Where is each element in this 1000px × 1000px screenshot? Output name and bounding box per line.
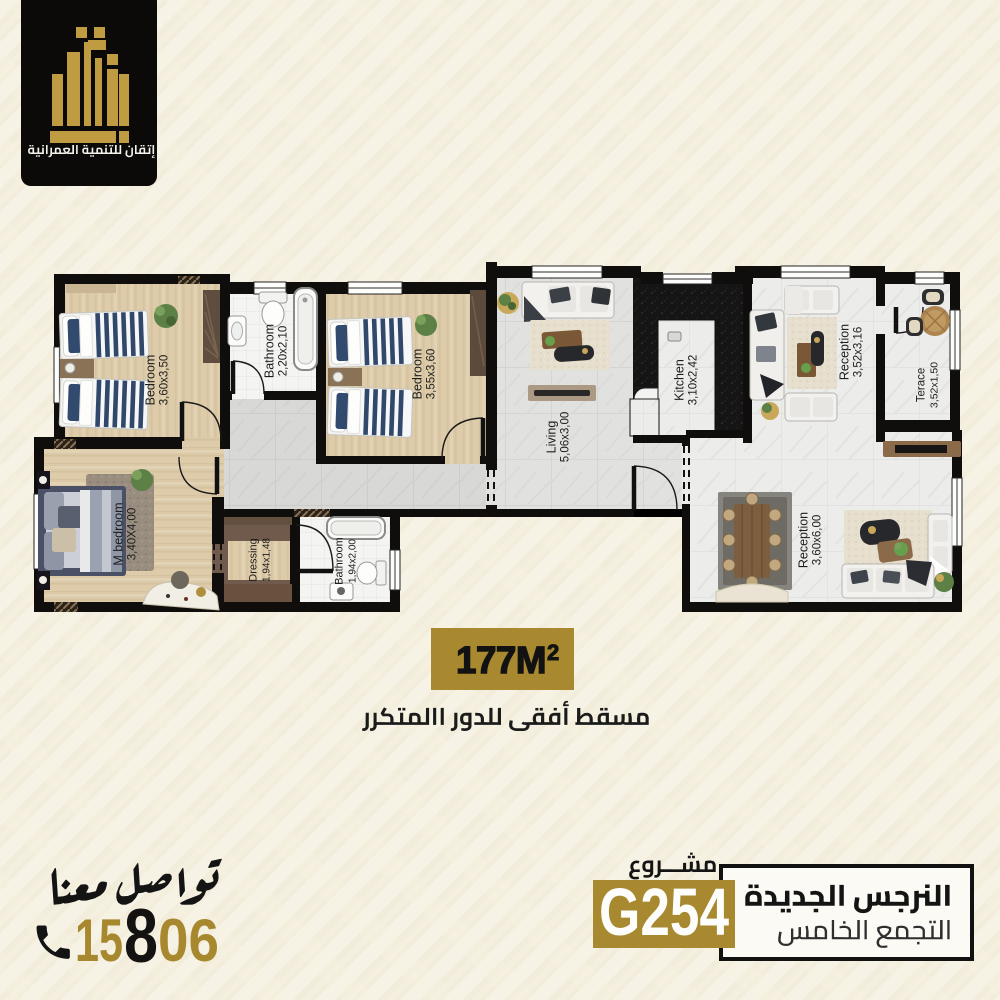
svg-text:Bathroom: Bathroom xyxy=(263,324,277,378)
svg-text:Bedroom: Bedroom xyxy=(411,349,425,400)
svg-text:Living: Living xyxy=(545,421,559,454)
svg-text:3,52x1,50: 3,52x1,50 xyxy=(929,362,941,408)
svg-text:3,52x3,16: 3,52x3,16 xyxy=(853,327,865,378)
svg-text:M bedroom: M bedroom xyxy=(112,502,126,565)
svg-text:06: 06 xyxy=(158,907,219,974)
svg-text:15: 15 xyxy=(75,907,123,974)
svg-text:3,60x3,50: 3,60x3,50 xyxy=(159,355,171,406)
svg-text:1,94x1,48: 1,94x1,48 xyxy=(262,538,273,582)
svg-text:Dressing: Dressing xyxy=(248,538,260,581)
svg-text:Reception: Reception xyxy=(797,512,811,568)
svg-text:8: 8 xyxy=(124,894,158,979)
svg-text:Reception: Reception xyxy=(838,324,852,380)
svg-text:3,40X4,00: 3,40X4,00 xyxy=(127,508,139,560)
svg-text:Bedroom: Bedroom xyxy=(144,355,158,406)
svg-text:5,06x3,00: 5,06x3,00 xyxy=(560,412,572,463)
svg-text:3,55x3,60: 3,55x3,60 xyxy=(426,349,438,400)
svg-text:3,10x2,42: 3,10x2,42 xyxy=(688,355,700,406)
svg-text:2: 2 xyxy=(547,640,559,665)
svg-text:177M: 177M xyxy=(456,640,546,682)
svg-text:1,94x2,00: 1,94x2,00 xyxy=(348,539,359,583)
svg-text:3,60x6,00: 3,60x6,00 xyxy=(812,515,824,566)
svg-text:Terace: Terace xyxy=(916,368,928,403)
svg-text:2,20x2,10: 2,20x2,10 xyxy=(278,326,290,377)
svg-text:G254: G254 xyxy=(599,875,729,950)
svg-text:Kitchen: Kitchen xyxy=(673,359,687,401)
svg-text:Bathroom: Bathroom xyxy=(334,537,346,585)
